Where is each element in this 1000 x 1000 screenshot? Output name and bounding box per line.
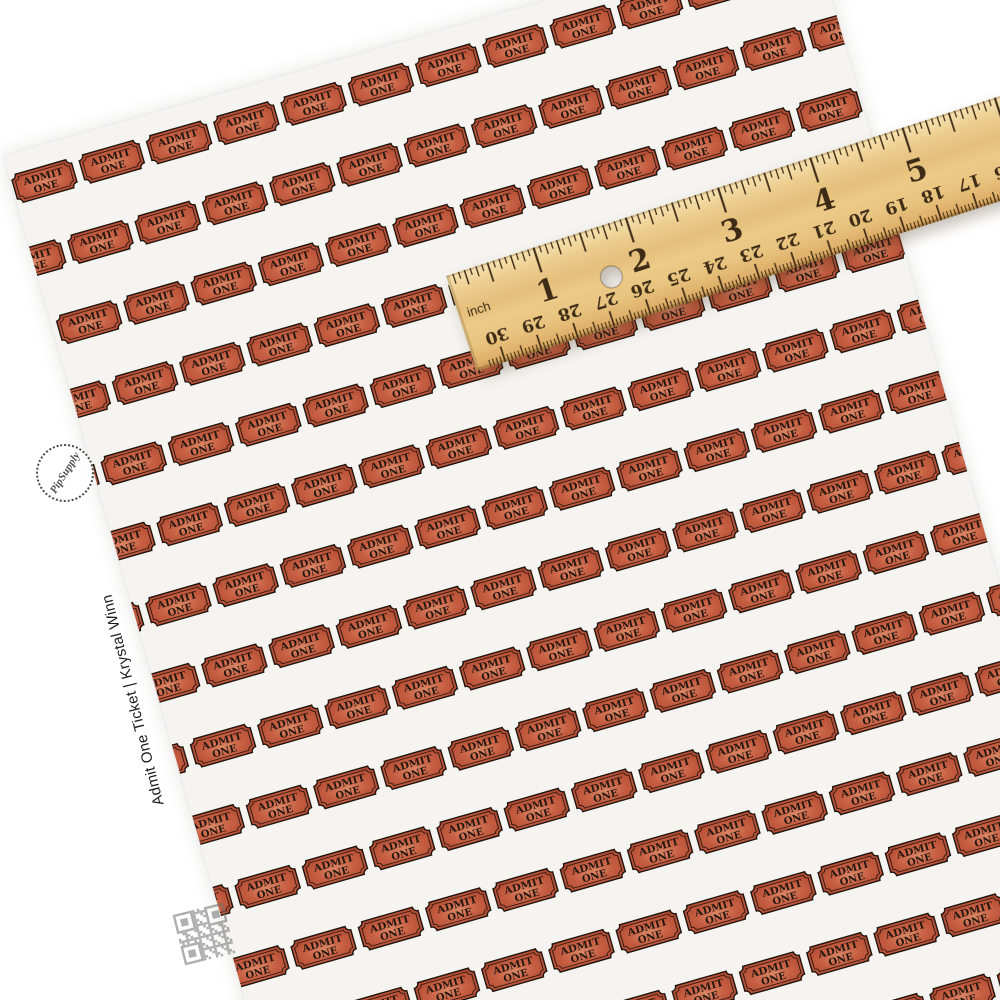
ticket bbox=[492, 867, 560, 912]
ticket bbox=[728, 569, 796, 614]
product-photo: ADMITONE PipSupply Admit One Ticket | Kr… bbox=[0, 0, 1000, 1000]
ticket bbox=[761, 790, 829, 835]
ticket bbox=[593, 607, 661, 652]
ticket bbox=[570, 768, 638, 813]
ticket bbox=[313, 765, 381, 810]
ticket bbox=[480, 948, 548, 993]
ticket bbox=[750, 408, 818, 453]
ticket bbox=[817, 389, 885, 434]
ticket bbox=[246, 322, 314, 367]
ticket bbox=[368, 826, 436, 871]
ticket bbox=[616, 0, 684, 30]
ticket bbox=[626, 829, 694, 874]
ticket bbox=[604, 527, 672, 572]
ticket bbox=[190, 261, 258, 306]
ticket bbox=[459, 184, 527, 229]
ticket bbox=[470, 104, 538, 149]
ticket bbox=[918, 591, 986, 636]
ticket bbox=[156, 502, 224, 547]
ticket bbox=[201, 643, 269, 688]
ticket bbox=[178, 803, 246, 848]
ticket bbox=[492, 405, 560, 450]
ticket bbox=[548, 466, 616, 511]
ticket bbox=[728, 107, 796, 152]
ticket bbox=[750, 870, 818, 915]
ticket bbox=[694, 809, 762, 854]
ticket bbox=[123, 280, 191, 325]
ticket bbox=[391, 665, 459, 710]
ticket bbox=[930, 49, 998, 94]
ticket bbox=[941, 431, 1000, 476]
ticket bbox=[100, 441, 168, 486]
ticket bbox=[347, 62, 415, 107]
ticket bbox=[739, 489, 807, 534]
ticket bbox=[537, 546, 605, 591]
ticket bbox=[357, 906, 425, 951]
ticket bbox=[896, 290, 964, 335]
ticket bbox=[582, 688, 650, 733]
ticket bbox=[324, 685, 392, 730]
ticket bbox=[940, 893, 1000, 938]
ticket bbox=[134, 200, 202, 245]
ticket bbox=[806, 931, 874, 976]
ticket bbox=[189, 723, 257, 768]
ticket bbox=[436, 806, 504, 851]
ticket bbox=[167, 422, 235, 467]
ticket bbox=[616, 447, 684, 492]
ticket bbox=[605, 65, 673, 110]
ticket bbox=[482, 23, 550, 68]
ticket bbox=[145, 582, 213, 627]
ticket bbox=[55, 300, 123, 345]
ticket bbox=[403, 123, 471, 168]
ticket bbox=[538, 84, 606, 129]
ticket bbox=[291, 463, 359, 508]
ticket bbox=[290, 925, 358, 970]
ticket bbox=[335, 604, 403, 649]
ticket bbox=[884, 832, 952, 877]
ticket bbox=[201, 181, 269, 226]
ticket bbox=[413, 967, 481, 1000]
ticket bbox=[11, 158, 79, 203]
ticket bbox=[301, 845, 369, 890]
ticket bbox=[560, 386, 628, 431]
ticket bbox=[44, 380, 112, 425]
ticket bbox=[212, 563, 280, 608]
ticket bbox=[89, 521, 157, 566]
ticket bbox=[861, 992, 929, 1000]
ticket bbox=[762, 328, 830, 373]
ticket bbox=[526, 627, 594, 672]
ticket bbox=[470, 566, 538, 611]
ticket bbox=[672, 508, 740, 553]
ticket bbox=[234, 864, 302, 909]
ticket bbox=[963, 270, 1000, 315]
ticket bbox=[684, 0, 752, 11]
ticket bbox=[235, 402, 303, 447]
ticket bbox=[526, 165, 594, 210]
ticket bbox=[638, 749, 706, 794]
ticket bbox=[929, 973, 997, 1000]
ticket bbox=[179, 341, 247, 386]
ticket bbox=[694, 347, 762, 392]
ticket bbox=[245, 784, 313, 829]
ticket bbox=[336, 142, 404, 187]
ticket bbox=[346, 986, 414, 1000]
ticket bbox=[627, 367, 695, 412]
stamp-label: PipSupply bbox=[48, 450, 83, 496]
ticket bbox=[133, 662, 201, 707]
ticket bbox=[549, 4, 617, 49]
ticket bbox=[67, 219, 135, 264]
ticket bbox=[807, 7, 875, 52]
ticket bbox=[414, 43, 482, 88]
ticket bbox=[279, 543, 347, 588]
ticket bbox=[907, 671, 975, 716]
ticket bbox=[682, 890, 750, 935]
ticket bbox=[111, 361, 179, 406]
ticket bbox=[784, 630, 852, 675]
ticket bbox=[3, 178, 11, 223]
ticket bbox=[615, 909, 683, 954]
ticket bbox=[145, 120, 213, 165]
ticket bbox=[873, 912, 941, 957]
ticket bbox=[740, 26, 808, 71]
ticket bbox=[795, 549, 863, 594]
ticket bbox=[828, 771, 896, 816]
ticket bbox=[402, 585, 470, 630]
ticket bbox=[324, 222, 392, 267]
ticket bbox=[380, 745, 448, 790]
ticket bbox=[358, 444, 426, 489]
ticket bbox=[672, 46, 740, 91]
ticket bbox=[649, 668, 717, 713]
ticket bbox=[414, 505, 482, 550]
ticket bbox=[280, 81, 348, 126]
ticket bbox=[503, 787, 571, 832]
ticket bbox=[313, 303, 381, 348]
ticket bbox=[392, 203, 460, 248]
ticket bbox=[3, 239, 67, 284]
ticket bbox=[559, 848, 627, 893]
ticket bbox=[548, 928, 616, 973]
ticket bbox=[369, 364, 437, 409]
ticket bbox=[257, 704, 325, 749]
ticket bbox=[974, 652, 1000, 697]
ticket bbox=[885, 370, 953, 415]
ticket bbox=[514, 707, 582, 752]
ticket bbox=[772, 710, 840, 755]
ticket bbox=[425, 425, 493, 470]
ticket bbox=[705, 729, 773, 774]
ticket bbox=[874, 0, 942, 33]
ticket bbox=[346, 524, 414, 569]
ticket bbox=[78, 139, 146, 184]
ticket bbox=[302, 383, 370, 428]
ticket bbox=[796, 87, 864, 132]
ticket bbox=[213, 101, 281, 146]
ticket bbox=[951, 813, 1000, 858]
ticket bbox=[806, 469, 874, 514]
ticket bbox=[929, 511, 997, 556]
ticket bbox=[604, 989, 672, 1000]
ticket bbox=[671, 970, 739, 1000]
ticket bbox=[380, 283, 448, 328]
ticket bbox=[594, 145, 662, 190]
ticket bbox=[223, 482, 291, 527]
ticket bbox=[683, 428, 751, 473]
ticket bbox=[269, 162, 337, 207]
ticket bbox=[738, 951, 806, 996]
ticket bbox=[985, 572, 1000, 617]
ticket bbox=[817, 851, 885, 896]
ticket bbox=[996, 954, 1000, 999]
ticket bbox=[829, 309, 897, 354]
ticket bbox=[661, 126, 729, 171]
ticket bbox=[941, 0, 1000, 14]
ticket bbox=[3, 319, 56, 364]
ticket bbox=[862, 530, 930, 575]
ticket bbox=[660, 588, 728, 633]
ticket bbox=[952, 350, 1000, 395]
ticket bbox=[873, 450, 941, 495]
ticket bbox=[963, 732, 1000, 777]
ticket bbox=[863, 68, 931, 113]
ticket bbox=[424, 887, 492, 932]
ticket bbox=[481, 486, 549, 531]
ticket bbox=[268, 624, 336, 669]
ticket bbox=[716, 649, 784, 694]
ticket bbox=[458, 646, 526, 691]
ticket bbox=[851, 610, 919, 655]
ticket bbox=[447, 726, 515, 771]
ticket bbox=[895, 752, 963, 797]
ticket bbox=[257, 242, 325, 287]
ticket bbox=[839, 691, 907, 736]
